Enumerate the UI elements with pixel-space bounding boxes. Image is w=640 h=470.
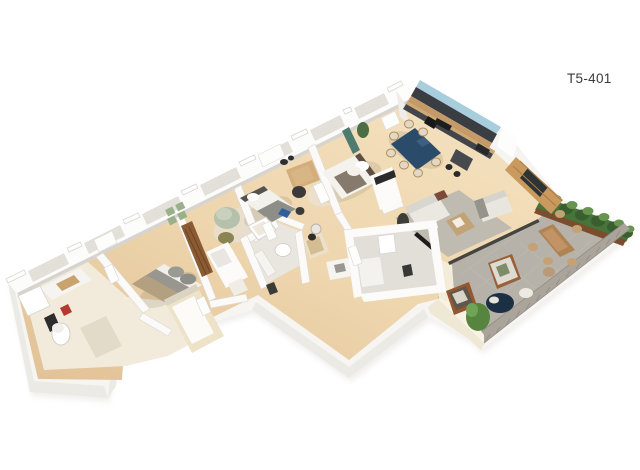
svg-text:T5-401: T5-401 <box>567 71 612 86</box>
